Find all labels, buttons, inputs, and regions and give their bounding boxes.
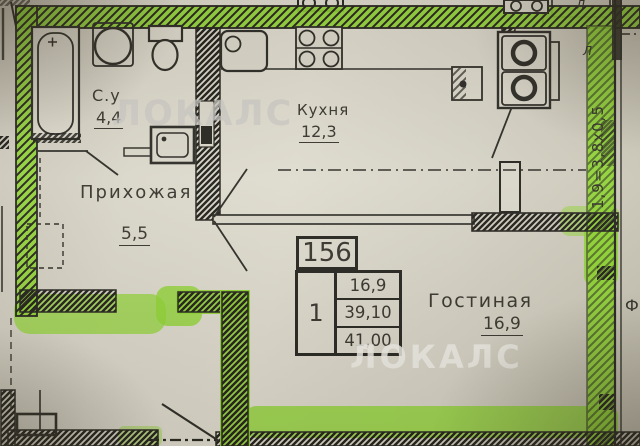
wall-left-corner-stub xyxy=(20,290,116,312)
wall-edge-bottom-left xyxy=(1,390,15,446)
kitchen-area: 12,3 xyxy=(299,122,339,141)
wall-bottom xyxy=(216,432,640,446)
wall-right xyxy=(587,26,616,446)
total-area-cell: 39,10 xyxy=(337,300,399,327)
kitchen-sink-icon xyxy=(221,31,267,71)
living-room-area: 16,9 xyxy=(481,314,523,334)
wall-entry-L xyxy=(176,290,250,446)
wall-bottom-left xyxy=(8,430,158,446)
neighbor-loggia-letter: Л xyxy=(576,0,585,12)
loggia-door-leaf xyxy=(492,104,513,158)
living-room-label: Гостиная xyxy=(428,290,533,312)
floor-plan-photo: С.у 4,4 Прихожая 5,5 Кухня 12,3 Гостиная… xyxy=(0,0,640,446)
apartment-number-stamp: 156 xyxy=(296,236,358,270)
living-area-cell: 16,9 xyxy=(337,273,399,300)
toilet-icon xyxy=(149,26,182,70)
entry-door-leaf xyxy=(162,404,219,441)
watermark-bottom: ЛОКАЛС xyxy=(350,338,523,376)
right-edge-letter: Ф xyxy=(625,296,639,315)
wall-hall-living xyxy=(213,215,474,224)
floor-plan-linework xyxy=(0,0,640,446)
loggia-mark-letter: Л xyxy=(583,44,592,58)
watermark-top: ЛОКАЛС xyxy=(112,94,293,134)
stove-icon xyxy=(296,27,342,69)
floor-plan-drawing: С.у 4,4 Прихожая 5,5 Кухня 12,3 Гостиная… xyxy=(0,0,640,446)
hallway-area: 5,5 xyxy=(119,224,150,244)
bath-sink-icon xyxy=(93,23,133,66)
bathtub-icon xyxy=(32,27,81,143)
loggia-dimension: 1,9=3,8х0,5 xyxy=(589,92,607,222)
living-door-leaf xyxy=(214,221,247,271)
kitchen-label: Кухня xyxy=(297,101,349,119)
room-count-cell: 1 xyxy=(298,273,337,353)
bathroom-door-leaf xyxy=(86,151,118,175)
hallway-label: Прихожая xyxy=(80,182,192,203)
